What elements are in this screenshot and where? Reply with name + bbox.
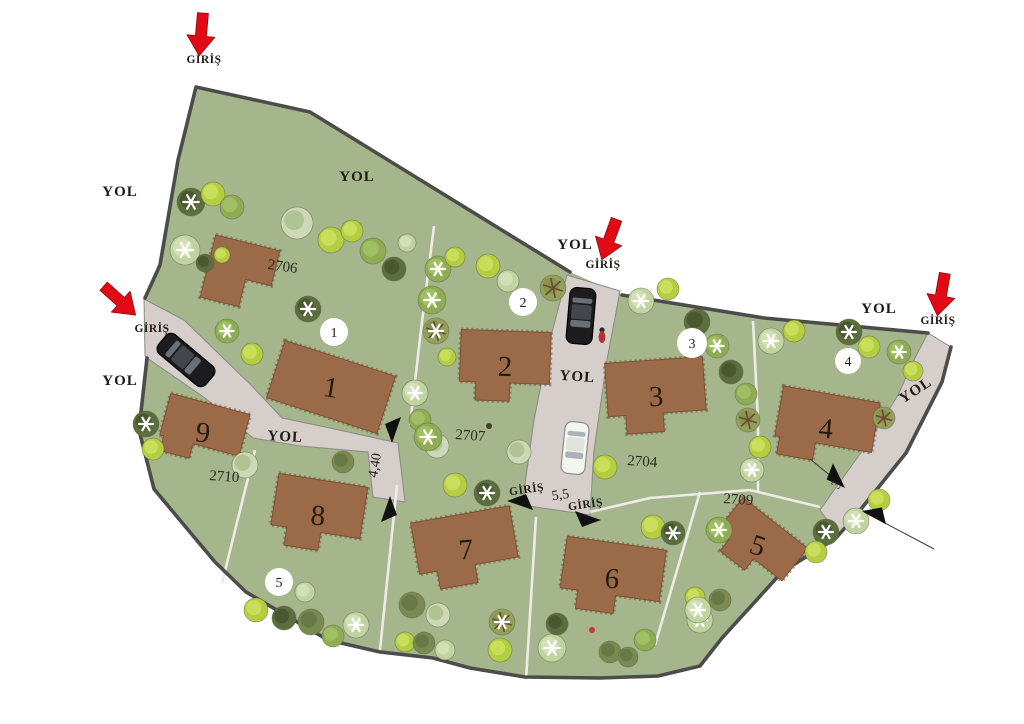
tree <box>395 632 415 652</box>
tree-canopy-highlight <box>737 385 751 399</box>
tree <box>488 638 512 662</box>
tree-blossom-center <box>750 468 753 471</box>
plot-number-badge-5: 5 <box>265 568 293 596</box>
tree-canopy-highlight <box>363 241 379 257</box>
badge-number: 2 <box>520 296 527 311</box>
tree-blossom-center <box>189 200 192 203</box>
tree-canopy-highlight <box>343 222 357 236</box>
tree-canopy-highlight <box>905 363 917 375</box>
tree-blossom-center <box>847 330 850 333</box>
tree <box>445 247 465 267</box>
road-label: YOL <box>557 237 593 253</box>
tree <box>685 597 711 623</box>
tree-canopy-highlight <box>274 608 289 623</box>
tree-canopy-highlight <box>246 600 261 615</box>
tree <box>443 473 467 497</box>
building-number: 3 <box>648 381 664 413</box>
tree-canopy-highlight <box>445 475 460 490</box>
tree <box>705 334 729 358</box>
tree-blossom-center <box>897 350 900 353</box>
parcel-number: 2710 <box>209 468 240 486</box>
tree-blossom-center <box>854 519 857 522</box>
tree <box>426 603 450 627</box>
tree-canopy-highlight <box>659 280 673 294</box>
tree <box>435 640 455 660</box>
tree <box>593 455 617 479</box>
tree-canopy-highlight <box>402 595 418 611</box>
tree <box>438 348 456 366</box>
badge-number: 1 <box>331 326 338 341</box>
tree-canopy-highlight <box>235 455 251 471</box>
tree <box>214 247 230 263</box>
tree <box>360 238 386 264</box>
plot-number-badge-1: 1 <box>320 318 348 346</box>
tree-blossom-center <box>413 391 416 394</box>
tree <box>758 328 784 354</box>
tree <box>538 634 566 662</box>
tree <box>133 411 159 437</box>
tree-canopy-highlight <box>478 256 493 271</box>
ground-speck <box>486 423 492 429</box>
tree-canopy-highlight <box>785 322 799 336</box>
badge-number: 5 <box>276 576 283 591</box>
tree <box>343 612 369 638</box>
car-black <box>566 287 597 345</box>
tree <box>735 383 757 405</box>
tree-blossom-center <box>183 248 186 251</box>
tree <box>599 641 621 663</box>
tree <box>272 606 296 630</box>
tree-canopy-highlight <box>222 197 237 212</box>
tree-canopy-highlight <box>636 631 650 645</box>
tree <box>298 609 324 635</box>
tree-canopy-highlight <box>807 543 821 557</box>
entrance-label: GİRİŞ <box>134 321 169 335</box>
tree <box>332 451 354 473</box>
tree <box>657 278 679 300</box>
tree <box>341 220 363 242</box>
tree-canopy-highlight <box>437 642 449 654</box>
road-label: YOL <box>102 373 138 389</box>
site-plan-page: 123456789123454,405,53YOLYOLYOLYOLYOLYOL… <box>0 0 1024 724</box>
tree-canopy-highlight <box>321 230 337 246</box>
tree <box>423 318 449 344</box>
tree <box>661 521 685 545</box>
entrance-red-arrow <box>185 12 217 57</box>
car-roof <box>566 437 585 452</box>
tree-blossom-center <box>436 267 439 270</box>
parcel-number: 2709 <box>723 491 754 509</box>
tree-canopy-highlight <box>428 605 443 620</box>
tree-canopy-highlight <box>334 453 348 467</box>
entrance-red-arrow <box>94 276 145 326</box>
tree-blossom-center <box>696 608 699 611</box>
road-label: YOL <box>267 428 303 446</box>
tree-canopy-highlight <box>447 249 459 261</box>
tree-blossom-center <box>500 620 503 623</box>
tree <box>382 257 406 281</box>
car-white <box>560 421 589 475</box>
tree-canopy-highlight <box>499 272 513 286</box>
tree-canopy-highlight <box>440 350 451 361</box>
tree <box>618 647 638 667</box>
tree <box>474 480 500 506</box>
tree-canopy-highlight <box>509 442 524 457</box>
badge-number: 4 <box>845 355 852 370</box>
entrance-red-arrow <box>589 215 630 265</box>
tree-blossom-center <box>717 528 720 531</box>
tree-canopy-highlight <box>203 184 218 199</box>
building-number: 8 <box>309 499 326 532</box>
tree-canopy-highlight <box>687 312 703 328</box>
tree-canopy-highlight <box>721 362 736 377</box>
tree-canopy-highlight <box>490 640 505 655</box>
tree <box>740 458 764 482</box>
tree <box>399 592 425 618</box>
tree-blossom-center <box>225 329 228 332</box>
tree-canopy-highlight <box>601 643 615 657</box>
tree-canopy-highlight <box>870 491 884 505</box>
road-label: YOL <box>861 301 897 317</box>
tree <box>402 380 428 406</box>
tree <box>476 254 500 278</box>
person-body <box>599 331 606 343</box>
tree <box>489 609 515 635</box>
entrance-red-arrow <box>924 271 959 318</box>
tree-blossom-center <box>671 531 674 534</box>
tree <box>805 541 827 563</box>
tree-canopy-highlight <box>415 634 429 648</box>
tree-canopy-highlight <box>548 615 562 629</box>
tree-canopy-highlight <box>620 649 632 661</box>
tree-canopy-highlight <box>301 612 317 628</box>
tree-canopy-highlight <box>243 345 257 359</box>
tree <box>413 632 435 654</box>
tree <box>398 234 416 252</box>
tree-canopy-highlight <box>216 249 226 259</box>
tree <box>295 582 315 602</box>
plot-number-badge-2: 2 <box>509 288 537 316</box>
tree-blossom-center <box>715 344 718 347</box>
tree <box>634 629 656 651</box>
tree-canopy-highlight <box>860 338 874 352</box>
tree <box>709 589 731 611</box>
tree <box>868 489 890 511</box>
tree-canopy-highlight <box>384 259 399 274</box>
tree-blossom-center <box>306 307 309 310</box>
tree-blossom-center <box>824 530 827 533</box>
tree <box>873 407 895 429</box>
tree <box>497 270 519 292</box>
tree <box>142 438 164 460</box>
tree <box>546 613 568 635</box>
tree-canopy-highlight <box>400 236 411 247</box>
tree <box>628 288 654 314</box>
tree <box>858 336 880 358</box>
tree <box>244 598 268 622</box>
parcel-number: 2704 <box>627 453 659 471</box>
tree <box>170 235 200 265</box>
tree <box>414 423 442 451</box>
entrance-label: GİRİŞ <box>186 52 221 66</box>
tree-blossom-center <box>430 298 433 301</box>
tree-blossom-center <box>550 646 553 649</box>
tree-canopy-highlight <box>711 591 725 605</box>
plot-number-badge-3: 3 <box>677 328 707 358</box>
tree <box>736 408 760 432</box>
tree <box>507 440 531 464</box>
tree <box>887 340 911 364</box>
tree-canopy-highlight <box>751 438 765 452</box>
tree <box>540 275 566 301</box>
tree-blossom-center <box>769 339 772 342</box>
tree <box>196 254 214 272</box>
tree-blossom-center <box>144 422 147 425</box>
tree-canopy-highlight <box>324 627 338 641</box>
tree <box>719 360 743 384</box>
tree-canopy-highlight <box>297 584 309 596</box>
tree-canopy-highlight <box>198 256 209 267</box>
tree <box>706 517 732 543</box>
tree-blossom-center <box>434 329 437 332</box>
tree-blossom-center <box>426 435 429 438</box>
tree <box>836 319 862 345</box>
tree-canopy-highlight <box>397 634 409 646</box>
tree <box>215 319 239 343</box>
parcel-number: 2707 <box>455 427 487 445</box>
road-label: YOL <box>559 368 596 386</box>
tree <box>220 195 244 219</box>
tree <box>418 286 446 314</box>
person-figure <box>599 327 606 343</box>
tree-canopy-highlight <box>643 517 658 532</box>
tree <box>295 296 321 322</box>
tree-canopy-highlight <box>284 210 304 230</box>
tree-canopy-highlight <box>144 440 158 454</box>
building-number: 7 <box>457 533 474 566</box>
plot-number-badge-4: 4 <box>835 348 861 374</box>
tree-blossom-center <box>485 491 488 494</box>
ground-speck <box>589 627 595 633</box>
tree <box>318 227 344 253</box>
tree-canopy-highlight <box>411 411 425 425</box>
car-roof <box>571 304 592 320</box>
tree-blossom-center <box>639 299 642 302</box>
road-label: YOL <box>102 184 138 200</box>
building-number: 6 <box>604 563 621 596</box>
road-label: YOL <box>339 169 375 185</box>
tree <box>749 436 771 458</box>
badge-number: 3 <box>689 337 696 352</box>
site-plan-map: 123456789123454,405,53YOLYOLYOLYOLYOLYOL… <box>0 0 1024 724</box>
tree <box>322 625 344 647</box>
tree-blossom-center <box>354 623 357 626</box>
tree <box>783 320 805 342</box>
tree <box>241 343 263 365</box>
building-number: 2 <box>497 351 512 383</box>
tree <box>281 207 313 239</box>
tree-canopy-highlight <box>595 457 610 472</box>
